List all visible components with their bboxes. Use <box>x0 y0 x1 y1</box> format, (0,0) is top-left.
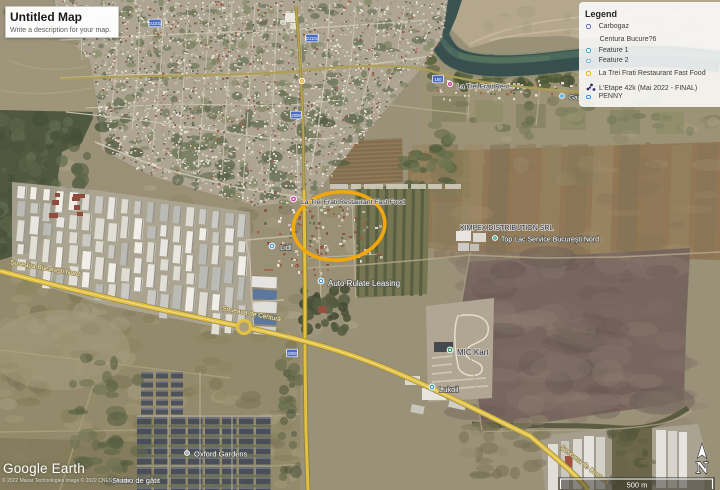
svg-text:2008: 2008 <box>287 351 297 356</box>
svg-text:KIMPEX DISTRIBUTION SRL: KIMPEX DISTRIBUTION SRL <box>460 225 553 232</box>
svg-text:La Trei Frați Rest...: La Trei Frați Rest... <box>457 84 515 91</box>
svg-text:DJ101: DJ101 <box>149 21 162 26</box>
svg-text:500 m: 500 m <box>627 481 648 490</box>
svg-text:160: 160 <box>434 77 442 82</box>
svg-text:DJ101: DJ101 <box>306 36 319 41</box>
svg-text:Lukoil: Lukoil <box>439 385 459 394</box>
svg-text:Auto Rulate Leasing: Auto Rulate Leasing <box>328 279 400 288</box>
svg-text:Oxford Gardens: Oxford Gardens <box>194 450 248 459</box>
svg-text:La Trei Frați Restaurant Fast: La Trei Frați Restaurant Fast Food <box>301 199 405 206</box>
svg-text:Lidl: Lidl <box>280 243 292 252</box>
svg-text:MIC Kart: MIC Kart <box>457 348 489 357</box>
svg-text:Top Lac Service București Nord: Top Lac Service București Nord <box>501 237 599 244</box>
svg-text:N: N <box>696 458 709 477</box>
svg-text:2008: 2008 <box>291 113 301 118</box>
